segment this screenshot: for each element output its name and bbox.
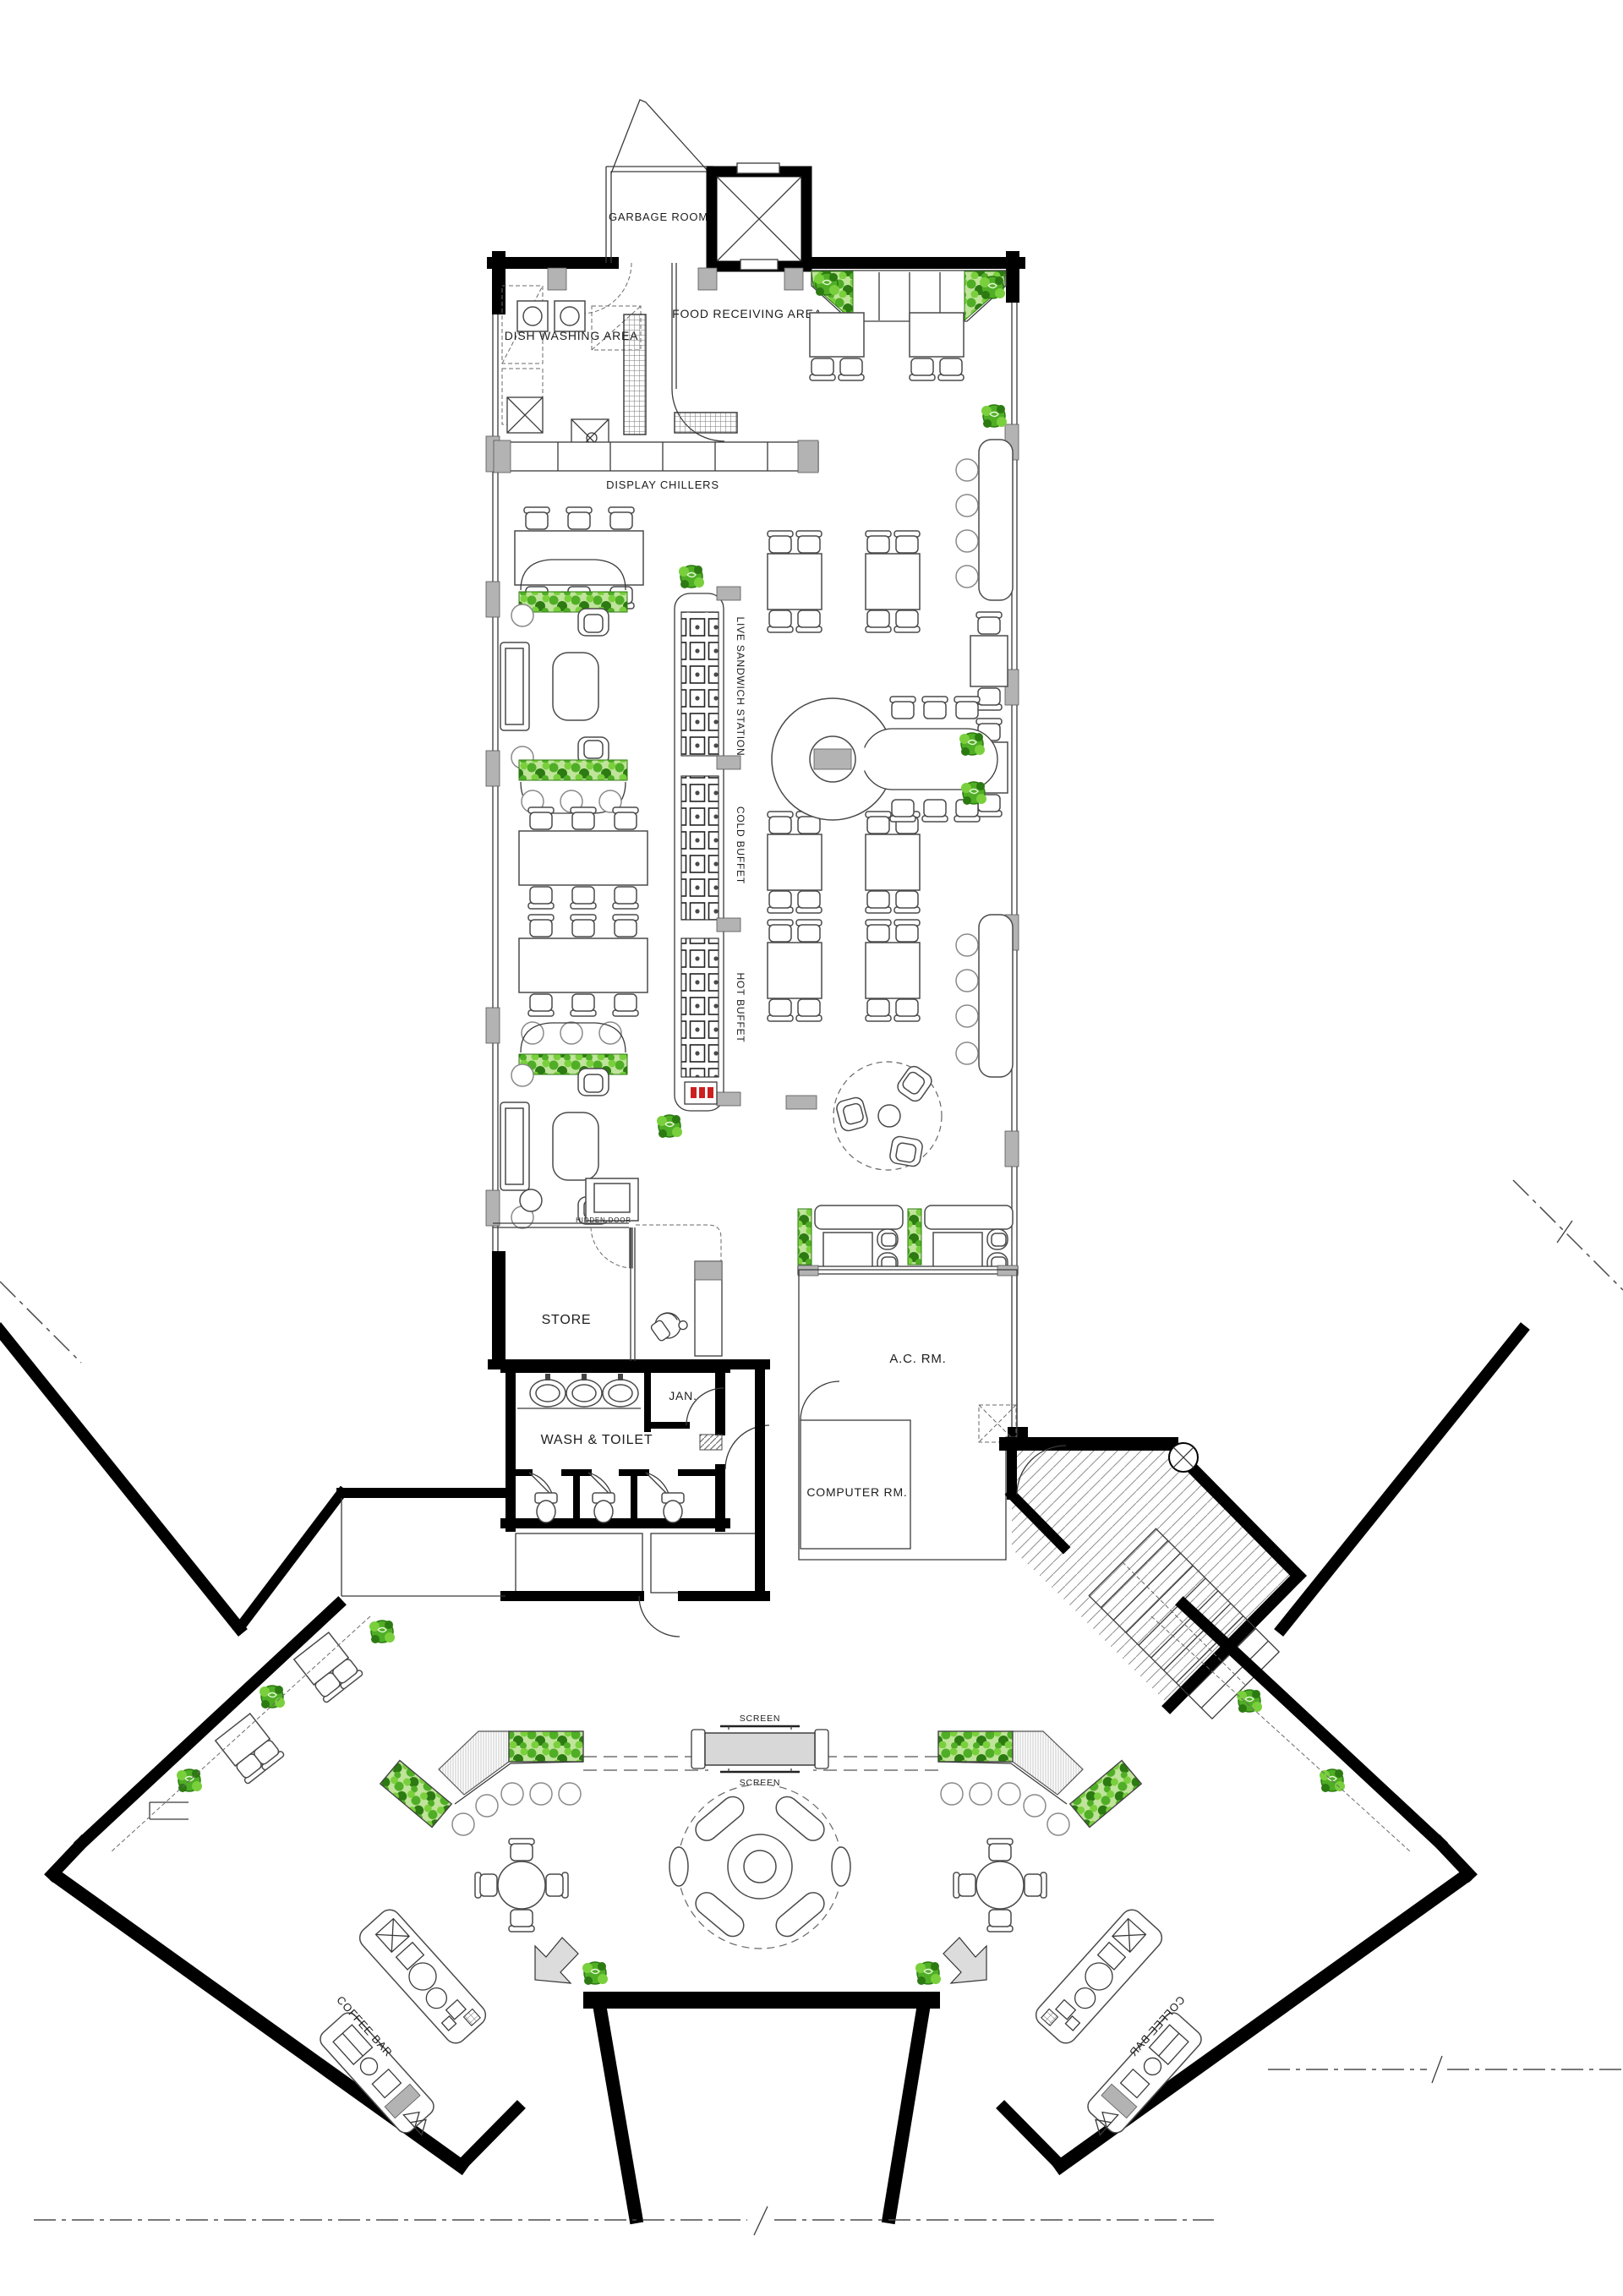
centerlines	[0, 1180, 1623, 2235]
buffet-line: LIVE SANDWICH STATION COLD BUFFET HOT BU…	[675, 587, 746, 1111]
garbage-room: GARBAGE ROOM	[581, 100, 713, 314]
wash-toilet-label: WASH & TOILET	[541, 1433, 653, 1447]
garbage-room-label: GARBAGE ROOM	[609, 210, 708, 223]
dining-tables	[768, 313, 1008, 1021]
coffee-bar-wing: COFFEE BAR	[316, 1905, 489, 2144]
hot-buffet-label: HOT BUFFET	[735, 972, 746, 1042]
screen-label-back: SCREEN	[740, 1778, 781, 1788]
floor-plan-drawing: GARBAGE ROOM DISH WASHING AREA FOOD RECE	[0, 0, 1623, 2296]
entry-vestibule	[582, 1962, 941, 2217]
cold-buffet-label: COLD BUFFET	[735, 806, 746, 884]
lobby-center: SCREEN SCREEN	[582, 1714, 941, 2217]
ac-computer-rooms: A.C. RM. COMPUTER RM.	[799, 1270, 1017, 1560]
elevator-shaft	[548, 163, 806, 290]
display-chillers-label: DISPLAY CHILLERS	[606, 478, 719, 491]
hidden-door-label: HIDDEN DOOR	[576, 1216, 631, 1224]
double-screen: SCREEN SCREEN	[691, 1714, 828, 1788]
booth-row	[798, 1205, 1018, 1276]
display-chillers-counter: DISPLAY CHILLERS	[494, 440, 818, 491]
banquette-counter	[380, 1731, 583, 1835]
janitor-label: JAN.	[669, 1389, 697, 1402]
floor-plan-page: GARBAGE ROOM DISH WASHING AREA FOOD RECE	[0, 0, 1623, 2296]
computer-room-label: COMPUTER RM.	[806, 1485, 907, 1499]
ac-room-label: A.C. RM.	[889, 1352, 946, 1366]
dish-washing-area: DISH WASHING AREA	[502, 263, 737, 456]
store-label: STORE	[542, 1313, 592, 1327]
screen-label-front: SCREEN	[740, 1714, 781, 1724]
lounge-circle	[786, 1062, 942, 1170]
live-sandwich-label: LIVE SANDWICH STATION	[735, 616, 746, 756]
dish-washing-label: DISH WASHING AREA	[505, 329, 639, 342]
central-lounge	[669, 1785, 850, 1949]
left-wall-seating	[500, 507, 648, 1228]
entry-door-arrow	[535, 1938, 578, 1983]
main-dining-hall: GARBAGE ROOM DISH WASHING AREA FOOD RECE	[486, 100, 1028, 1447]
toilet-block: WASH & TOILET JAN.	[505, 1368, 769, 1527]
food-receiving-label: FOOD RECEIVING AREA	[672, 307, 822, 320]
store-room: HIDDEN DOOR STORE	[493, 1178, 722, 1361]
